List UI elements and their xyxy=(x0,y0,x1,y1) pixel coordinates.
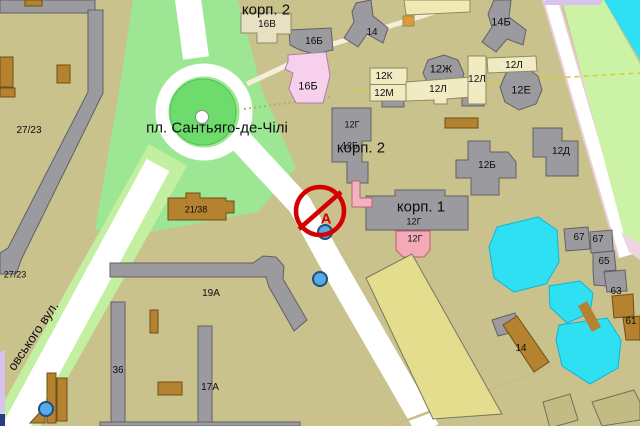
building-brown-b2 xyxy=(57,378,67,421)
building-brown-r1 xyxy=(612,294,634,318)
building-14-top xyxy=(344,0,388,47)
building-brown-bar12 xyxy=(445,118,478,128)
building-36 xyxy=(111,302,125,426)
building-bottom-sliver xyxy=(100,422,300,426)
building-19a xyxy=(110,256,307,331)
building-12b-mid xyxy=(456,141,516,195)
building-korp1 xyxy=(366,190,468,230)
building-khaki-1 xyxy=(543,394,578,426)
building-khaki-2 xyxy=(592,390,640,426)
building-orange-sq xyxy=(403,16,414,26)
blue-dot-marker[interactable] xyxy=(38,401,54,417)
building-brown-mid1 xyxy=(150,310,158,333)
building-12d xyxy=(533,128,578,176)
building-12e xyxy=(500,68,542,110)
building-12l-topright xyxy=(487,56,537,73)
building-brown-left2 xyxy=(57,65,70,83)
building-63 xyxy=(604,270,627,292)
building-brown-mid2 xyxy=(158,382,182,395)
building-12l-vertical xyxy=(468,56,486,104)
building-topleft-bar xyxy=(0,0,95,13)
left-edge-lavender xyxy=(0,350,5,414)
building-67b xyxy=(590,230,613,253)
building-pale-topright xyxy=(404,0,470,15)
bus-stop-letter: А xyxy=(321,212,332,227)
building-67a xyxy=(564,227,590,251)
building-17a xyxy=(198,326,212,426)
building-brown-topleft xyxy=(25,0,42,6)
building-brown-left3 xyxy=(0,88,15,97)
building-12g-pink xyxy=(396,231,430,257)
white-dot-marker xyxy=(195,110,209,124)
building-16b-gray xyxy=(289,28,333,54)
blue-dot-marker[interactable] xyxy=(312,271,328,287)
pond-low xyxy=(556,318,621,384)
building-16v xyxy=(241,13,291,43)
lavender-strip xyxy=(543,0,603,5)
pond-large xyxy=(489,217,559,292)
building-12g-korp2 xyxy=(332,108,371,183)
map-canvas[interactable]: корп. 216В16Б16Б1414Б12Ж12К12М12Л12Л12Л1… xyxy=(0,0,640,426)
building-12l-horizontal xyxy=(406,77,471,104)
no-entry-sign[interactable]: А xyxy=(292,183,350,241)
building-27-23 xyxy=(0,10,103,274)
building-brown-r2 xyxy=(623,316,640,340)
building-16b-pink xyxy=(285,52,330,103)
building-brown-left1 xyxy=(0,57,13,87)
building-14b xyxy=(482,0,526,52)
building-14-brown xyxy=(503,316,549,372)
main-street-upper xyxy=(187,0,196,58)
building-pink-connector xyxy=(352,181,372,207)
flag-marker[interactable] xyxy=(0,414,5,426)
